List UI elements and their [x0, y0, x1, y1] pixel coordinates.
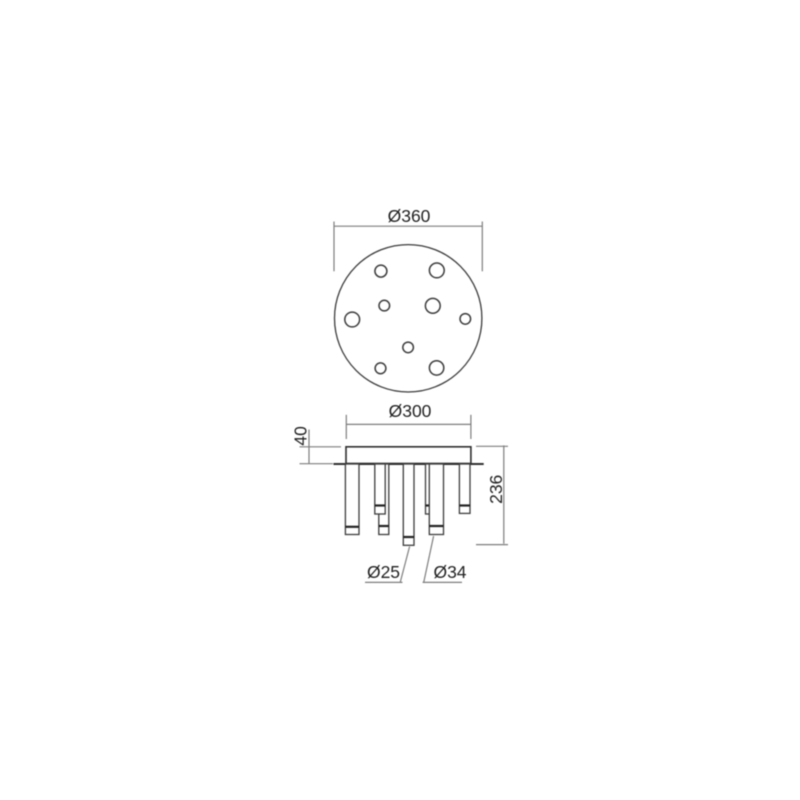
svg-text:Ø34: Ø34: [433, 562, 466, 582]
svg-text:40: 40: [290, 426, 310, 446]
svg-text:Ø360: Ø360: [388, 206, 431, 226]
svg-text:236: 236: [486, 475, 506, 504]
svg-text:Ø25: Ø25: [367, 562, 400, 582]
svg-text:Ø300: Ø300: [389, 401, 432, 421]
